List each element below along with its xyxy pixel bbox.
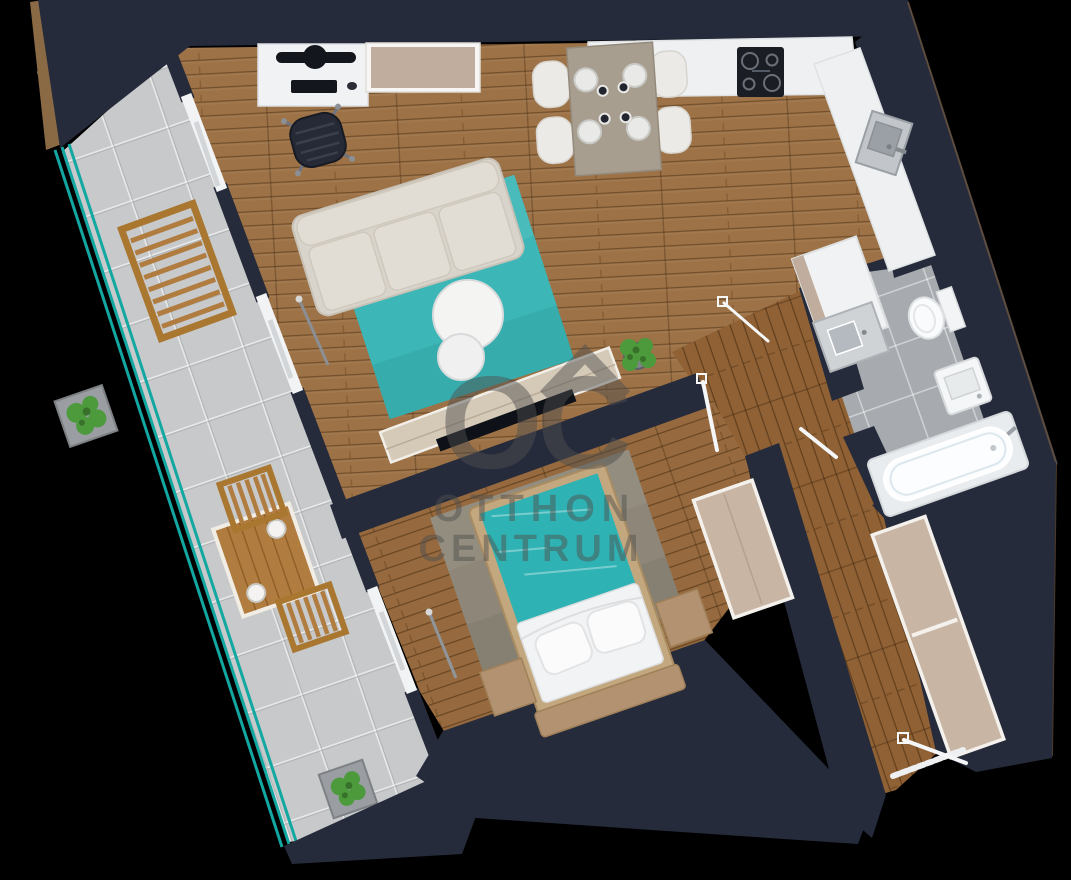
- mouse: [347, 82, 357, 90]
- apartment-floorplan-render: OC OTTHON CENTRUM: [0, 0, 1071, 880]
- sideboard: [366, 43, 480, 92]
- watermark: OC OTTHON CENTRUM: [419, 349, 644, 570]
- floorplan-canvas: OC OTTHON CENTRUM: [0, 0, 1071, 880]
- dining-table: [567, 42, 662, 176]
- cooktop: [737, 47, 784, 97]
- watermark-line2: CENTRUM: [419, 528, 644, 570]
- laptop: [291, 80, 337, 93]
- watermark-line1: OTTHON: [434, 488, 636, 530]
